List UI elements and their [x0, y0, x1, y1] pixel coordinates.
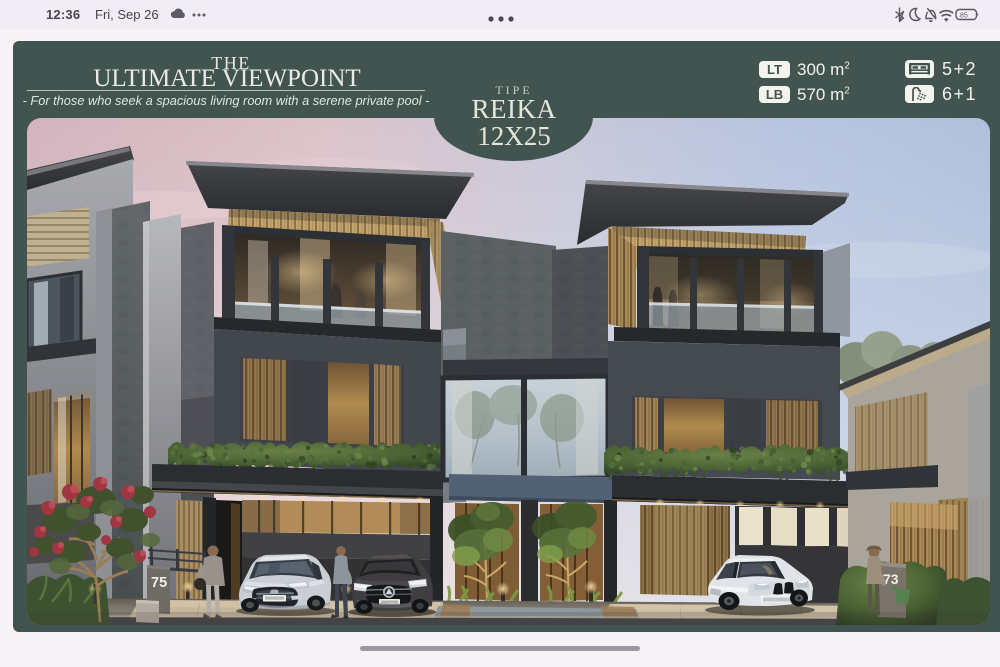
svg-text:75: 75: [151, 575, 167, 591]
svg-text:85: 85: [960, 12, 968, 19]
